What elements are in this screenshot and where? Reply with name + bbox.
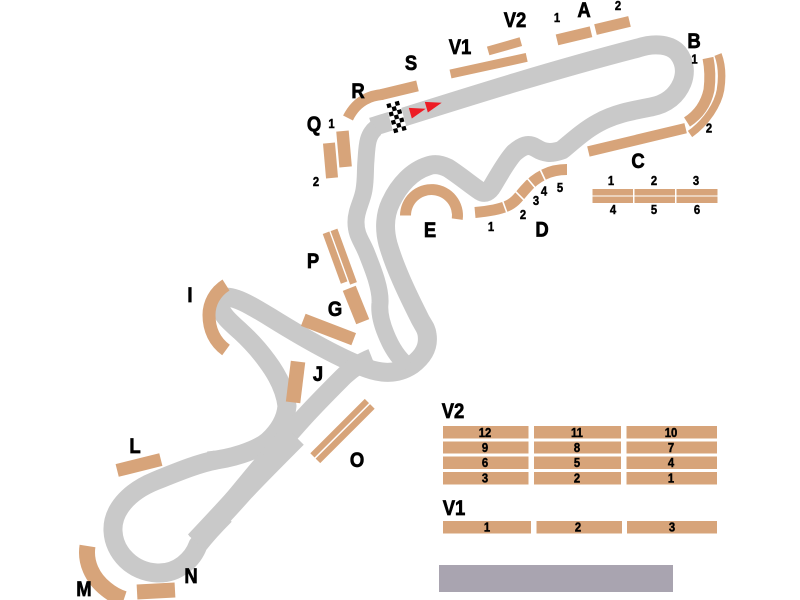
svg-text:2: 2 bbox=[575, 520, 582, 535]
svg-text:4: 4 bbox=[541, 184, 548, 199]
svg-text:V1: V1 bbox=[449, 36, 472, 59]
svg-text:1: 1 bbox=[554, 10, 561, 25]
svg-text:1: 1 bbox=[488, 219, 495, 234]
svg-text:3: 3 bbox=[693, 173, 700, 188]
svg-text:2: 2 bbox=[706, 121, 713, 136]
svg-text:1: 1 bbox=[484, 520, 491, 535]
svg-text:E: E bbox=[424, 219, 436, 242]
svg-text:L: L bbox=[129, 435, 140, 458]
svg-text:9: 9 bbox=[482, 440, 489, 455]
svg-text:G: G bbox=[328, 298, 342, 321]
svg-text:S: S bbox=[405, 52, 417, 75]
svg-text:3: 3 bbox=[533, 193, 540, 208]
svg-text:6: 6 bbox=[482, 455, 489, 470]
svg-text:2: 2 bbox=[651, 173, 658, 188]
svg-text:2: 2 bbox=[574, 471, 581, 486]
svg-text:C: C bbox=[631, 150, 644, 173]
svg-text:D: D bbox=[535, 218, 548, 241]
svg-text:1: 1 bbox=[691, 52, 698, 67]
svg-text:1: 1 bbox=[328, 116, 335, 131]
svg-text:2: 2 bbox=[615, 0, 622, 13]
svg-text:R: R bbox=[351, 80, 364, 103]
svg-text:V2: V2 bbox=[504, 9, 527, 32]
svg-text:1: 1 bbox=[608, 173, 615, 188]
svg-text:3: 3 bbox=[669, 520, 676, 535]
svg-text:V1: V1 bbox=[443, 497, 466, 520]
svg-text:5: 5 bbox=[557, 180, 564, 195]
svg-text:P: P bbox=[307, 250, 319, 273]
svg-text:B: B bbox=[687, 30, 700, 53]
svg-text:2: 2 bbox=[520, 207, 527, 222]
svg-text:V2: V2 bbox=[442, 400, 465, 423]
svg-text:7: 7 bbox=[668, 440, 675, 455]
svg-text:M: M bbox=[76, 578, 91, 600]
svg-text:J: J bbox=[313, 363, 323, 386]
svg-text:8: 8 bbox=[574, 440, 581, 455]
svg-text:11: 11 bbox=[571, 425, 583, 440]
svg-text:N: N bbox=[184, 565, 197, 588]
svg-text:4: 4 bbox=[668, 455, 675, 470]
svg-text:2: 2 bbox=[313, 174, 320, 189]
svg-text:3: 3 bbox=[482, 471, 489, 486]
svg-text:5: 5 bbox=[574, 455, 581, 470]
svg-text:12: 12 bbox=[479, 425, 492, 440]
svg-text:I: I bbox=[187, 284, 192, 307]
svg-text:A: A bbox=[577, 0, 590, 22]
svg-text:Q: Q bbox=[307, 113, 321, 136]
svg-text:5: 5 bbox=[651, 202, 658, 217]
svg-text:4: 4 bbox=[610, 202, 617, 217]
svg-text:10: 10 bbox=[665, 425, 678, 440]
svg-text:1: 1 bbox=[668, 471, 675, 486]
svg-text:O: O bbox=[350, 449, 364, 472]
svg-text:6: 6 bbox=[694, 202, 701, 217]
